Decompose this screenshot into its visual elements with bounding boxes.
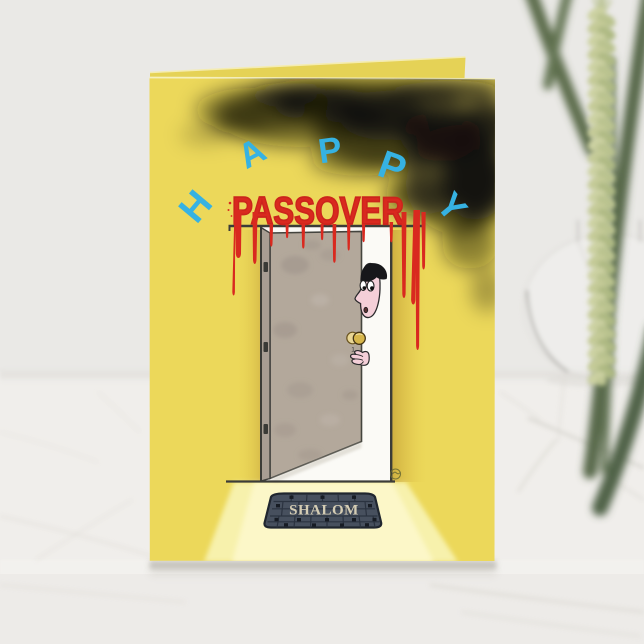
svg-text:1: 1 [351, 347, 355, 354]
svg-text:PASSOVER: PASSOVER [232, 190, 404, 233]
svg-text:SHALOM: SHALOM [289, 503, 359, 519]
